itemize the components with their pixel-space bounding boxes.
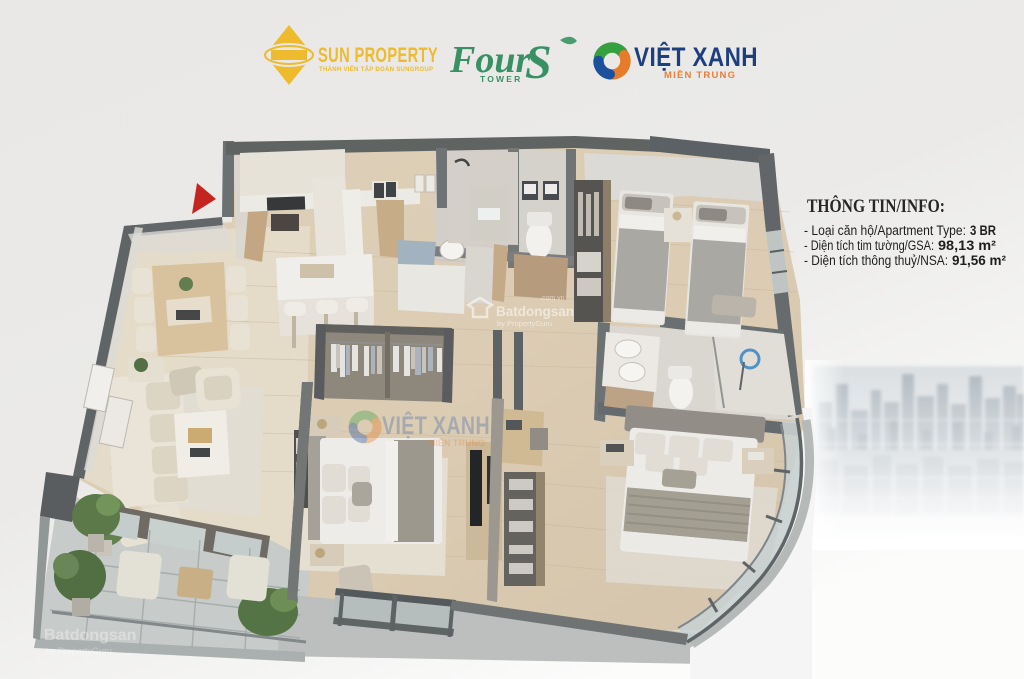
- svg-text:TOWER: TOWER: [480, 74, 522, 84]
- svg-text:THÔNG TIN/INFO:: THÔNG TIN/INFO:: [807, 195, 945, 217]
- svg-text:- Diện tích thông thuỷ/NSA:: - Diện tích thông thuỷ/NSA:: [804, 253, 948, 268]
- svg-text:MIỀN TRUNG: MIỀN TRUNG: [428, 438, 485, 448]
- svg-text:VIỆT XANH: VIỆT XANH: [382, 410, 490, 440]
- svg-text:3 BR: 3 BR: [970, 223, 996, 238]
- svg-text:- Loại căn hộ/Apartment Type:: - Loại căn hộ/Apartment Type:: [804, 223, 966, 238]
- svg-text:by PropertyGuru: by PropertyGuru: [46, 646, 112, 656]
- svg-text:by PropertyGuru: by PropertyGuru: [497, 319, 552, 328]
- svg-text:98,13 m²: 98,13 m²: [938, 238, 997, 253]
- svg-text:Batdongsan: Batdongsan: [44, 627, 136, 644]
- svg-text:91,56 m²: 91,56 m²: [952, 253, 1006, 268]
- svg-text:S: S: [525, 36, 552, 89]
- svg-text:- Diện tích tim tường/GSA:: - Diện tích tim tường/GSA:: [804, 238, 934, 253]
- svg-text:SUN PROPERTY: SUN PROPERTY: [318, 44, 438, 67]
- svg-text:THÀNH VIÊN TẬP ĐOÀN SUNGROUP: THÀNH VIÊN TẬP ĐOÀN SUNGROUP: [319, 65, 433, 73]
- svg-text:VIỆT XANH: VIỆT XANH: [634, 41, 758, 72]
- svg-text:.com.vn: .com.vn: [540, 295, 565, 302]
- svg-text:MIỀN TRUNG: MIỀN TRUNG: [664, 70, 736, 81]
- svg-text:Batdongsan: Batdongsan: [496, 304, 574, 319]
